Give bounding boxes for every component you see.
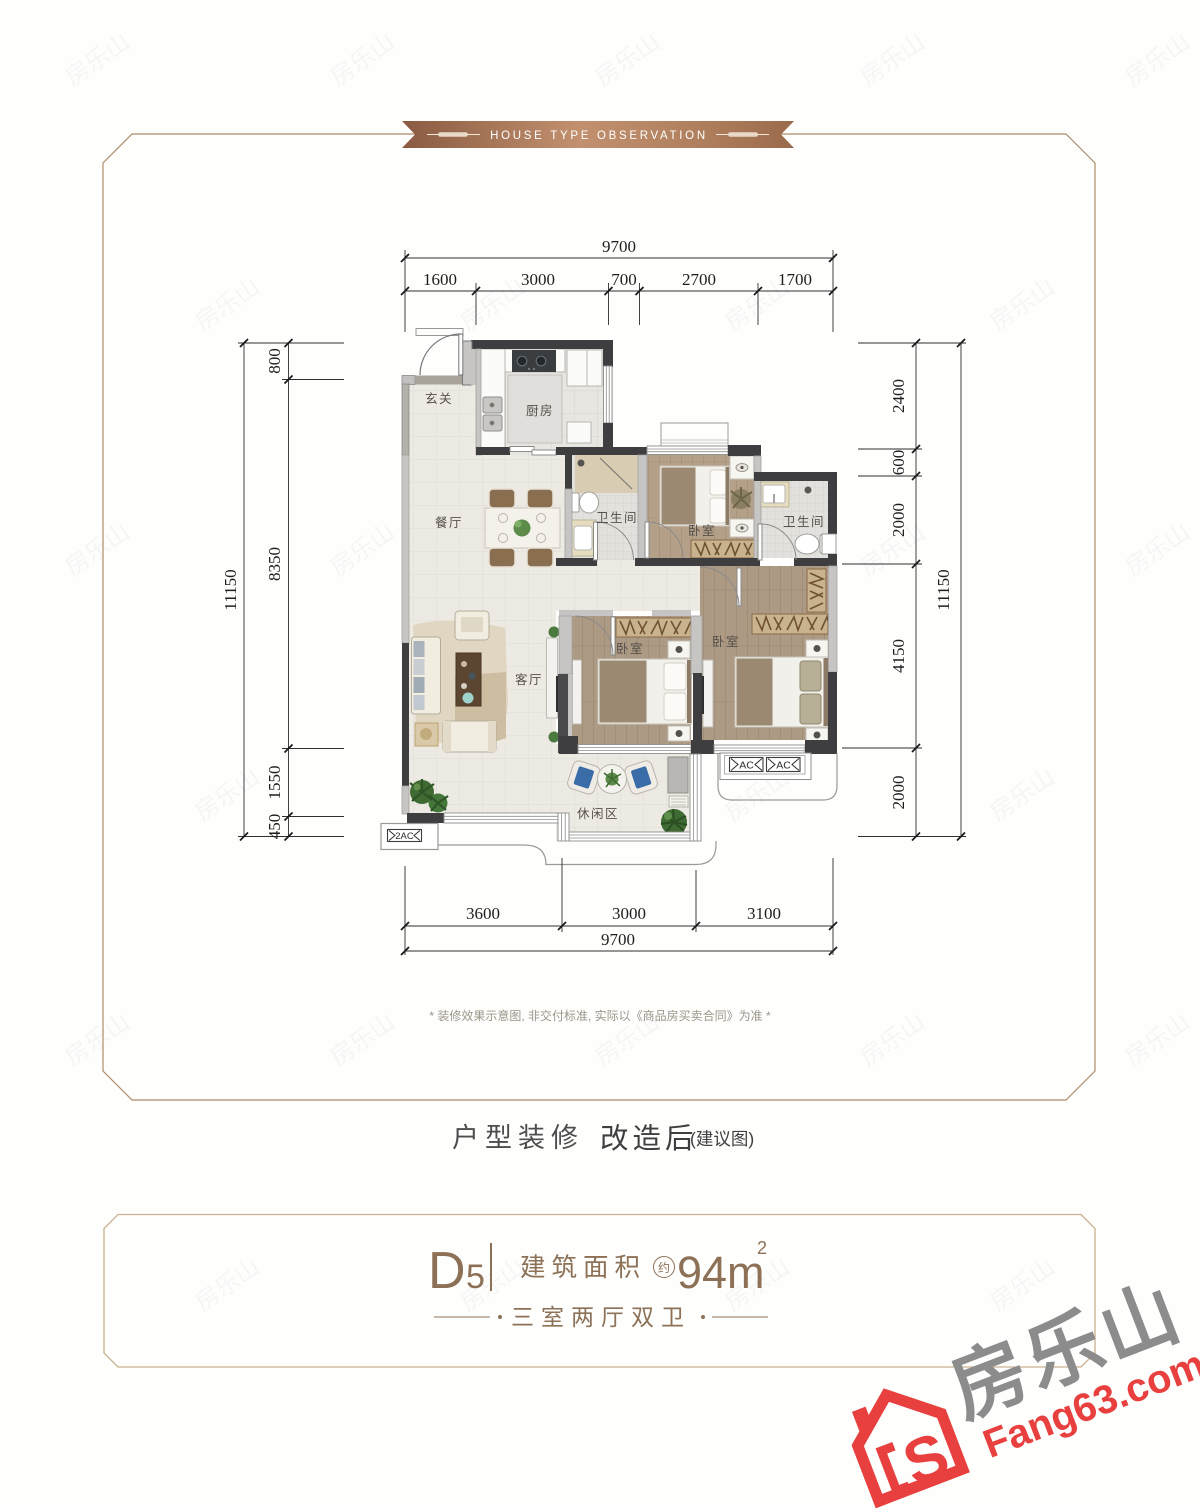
- svg-text:2: 2: [757, 1238, 767, 1258]
- svg-text:2000: 2000: [889, 503, 908, 537]
- svg-text:玄关: 玄关: [425, 391, 453, 406]
- svg-text:2AC: 2AC: [395, 831, 414, 842]
- svg-text:3000: 3000: [521, 270, 555, 289]
- svg-text:卧室: 卧室: [616, 641, 644, 656]
- svg-text:1550: 1550: [265, 766, 284, 800]
- svg-text:5: 5: [466, 1258, 485, 1296]
- svg-text:1600: 1600: [423, 270, 457, 289]
- svg-text:11150: 11150: [934, 569, 953, 610]
- svg-text:卫生间: 卫生间: [596, 511, 638, 525]
- svg-text:改造后: 改造后: [600, 1123, 698, 1155]
- svg-text:1700: 1700: [778, 270, 812, 289]
- svg-text:600: 600: [889, 450, 908, 476]
- svg-text:9700: 9700: [602, 237, 636, 256]
- svg-text:客厅: 客厅: [515, 672, 543, 687]
- svg-text:11150: 11150: [221, 569, 240, 610]
- svg-text:8350: 8350: [265, 547, 284, 581]
- svg-text:三室两厅双卫: 三室两厅双卫: [511, 1304, 691, 1330]
- svg-text:3000: 3000: [612, 904, 646, 923]
- svg-text:AC: AC: [776, 760, 791, 772]
- svg-text:厨房: 厨房: [526, 403, 554, 418]
- svg-text:* 装修效果示意图, 非交付标准, 实际以《商品房买卖合同: * 装修效果示意图, 非交付标准, 实际以《商品房买卖合同》为准 *: [429, 1008, 771, 1023]
- svg-text:卧室: 卧室: [712, 634, 740, 649]
- svg-text:2000: 2000: [889, 776, 908, 810]
- svg-text:HOUSE TYPE OBSERVATION: HOUSE TYPE OBSERVATION: [490, 130, 708, 142]
- svg-text:卧室: 卧室: [688, 523, 716, 538]
- svg-text:(建议图): (建议图): [690, 1129, 754, 1149]
- svg-text:建筑面积: 建筑面积: [520, 1254, 646, 1282]
- svg-text:94m: 94m: [677, 1247, 765, 1298]
- svg-text:AC: AC: [739, 760, 754, 772]
- svg-text:D: D: [428, 1242, 466, 1300]
- svg-text:9700: 9700: [601, 930, 635, 949]
- svg-text:2700: 2700: [682, 270, 716, 289]
- svg-text:2400: 2400: [889, 379, 908, 413]
- svg-text:4150: 4150: [889, 639, 908, 673]
- svg-text:450: 450: [265, 814, 284, 840]
- svg-text:3600: 3600: [466, 904, 500, 923]
- svg-text:休闲区: 休闲区: [577, 807, 619, 821]
- svg-text:卫生间: 卫生间: [783, 515, 825, 529]
- svg-text:3100: 3100: [747, 904, 781, 923]
- svg-text:户型装修: 户型装修: [452, 1123, 584, 1153]
- svg-text:餐厅: 餐厅: [435, 515, 463, 530]
- svg-text:700: 700: [611, 270, 637, 289]
- svg-text:800: 800: [265, 348, 284, 374]
- svg-text:约: 约: [658, 1260, 670, 1275]
